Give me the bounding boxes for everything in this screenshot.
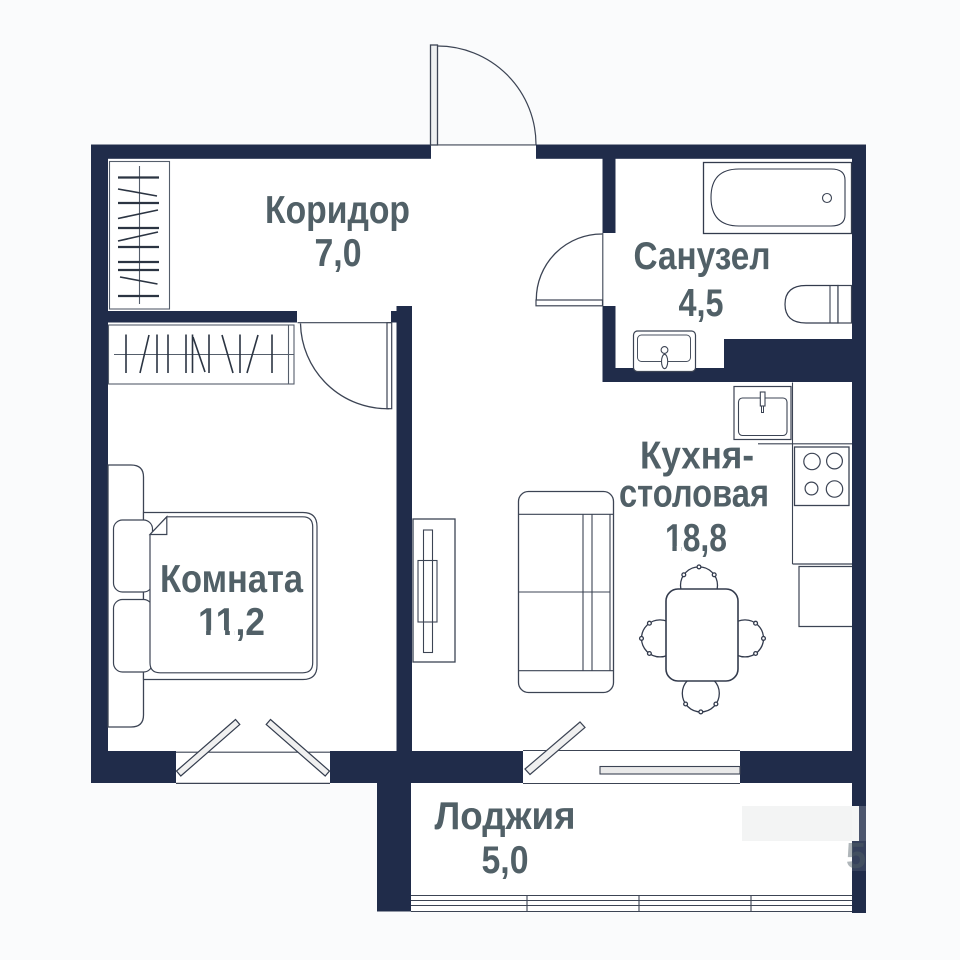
svg-text:4,5: 4,5 — [679, 282, 724, 325]
svg-text:столовая: столовая — [619, 473, 769, 516]
svg-text:Комната: Комната — [160, 558, 303, 601]
svg-text:Санузел: Санузел — [634, 235, 771, 278]
svg-text:5: 5 — [846, 835, 866, 876]
svg-text:Коридор: Коридор — [265, 189, 410, 232]
svg-text:5,0: 5,0 — [482, 839, 529, 882]
svg-text:11,2: 11,2 — [198, 601, 265, 644]
svg-text:18,8: 18,8 — [665, 517, 727, 560]
svg-text:Лоджия: Лоджия — [435, 795, 576, 838]
svg-text:Кухня-: Кухня- — [640, 435, 754, 478]
svg-text:7,0: 7,0 — [315, 232, 362, 275]
